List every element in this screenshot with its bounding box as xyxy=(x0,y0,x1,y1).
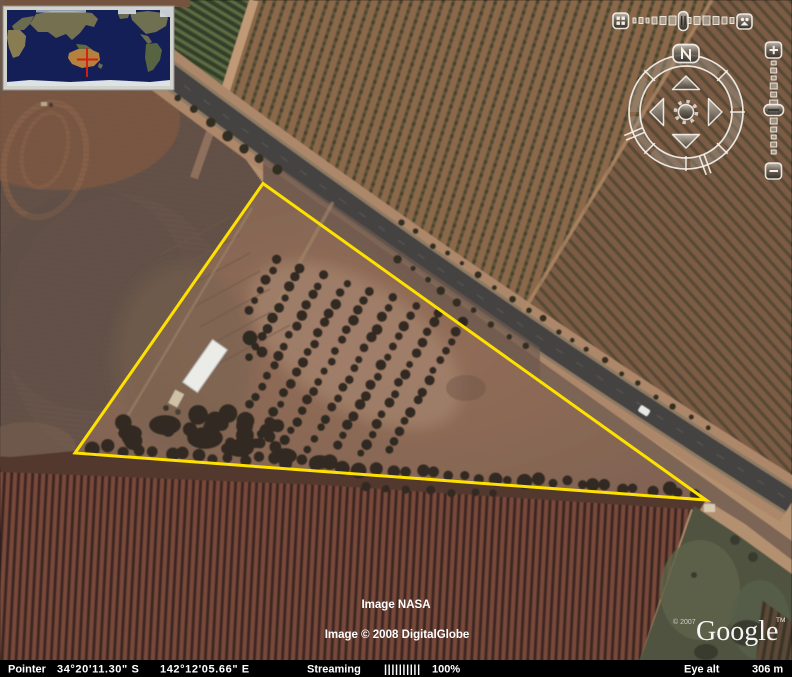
svg-text:306 m: 306 m xyxy=(752,664,783,676)
svg-text:||||||||||: |||||||||| xyxy=(384,664,421,676)
svg-text:Eye alt: Eye alt xyxy=(684,664,720,676)
svg-text:142°12'05.66" E: 142°12'05.66" E xyxy=(160,664,250,676)
svg-text:100%: 100% xyxy=(432,664,460,676)
svg-text:Image NASA: Image NASA xyxy=(361,599,430,611)
svg-text:Pointer: Pointer xyxy=(8,664,47,676)
svg-text:34°20'11.30" S: 34°20'11.30" S xyxy=(57,664,139,676)
svg-text:Streaming: Streaming xyxy=(307,664,361,676)
svg-text:Google: Google xyxy=(696,616,778,647)
svg-text:© 2007: © 2007 xyxy=(673,618,696,626)
svg-text:Image © 2008 DigitalGlobe: Image © 2008 DigitalGlobe xyxy=(325,629,470,641)
svg-text:TM: TM xyxy=(776,617,785,624)
